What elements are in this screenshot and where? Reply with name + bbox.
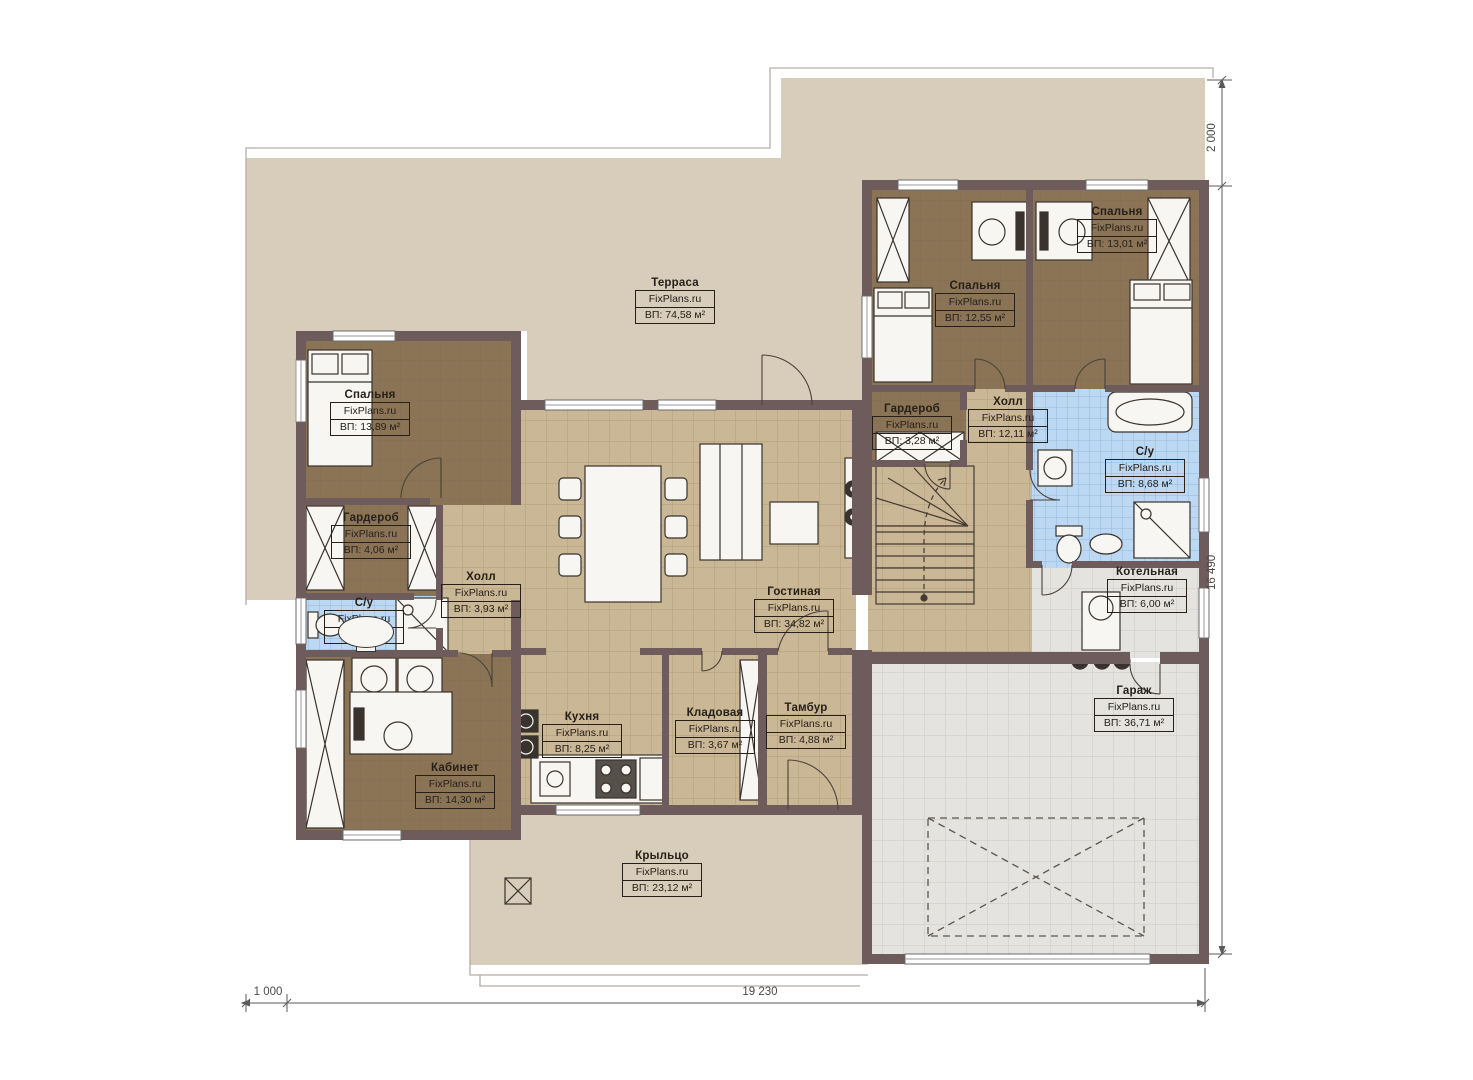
sink-icon <box>338 616 394 648</box>
floor-plan-drawing <box>0 0 1473 1080</box>
room-label-garage: Гараж FixPlans.ruВП: 36,71 м² <box>1094 685 1174 732</box>
room-label-boiler-room: Котельная FixPlans.ruВП: 6,00 м² <box>1107 566 1187 613</box>
room-label-wardrobe-left: Гардероб FixPlans.ruВП: 4,06 м² <box>331 512 411 559</box>
room-label-terrace: Терраса FixPlans.ruВП: 74,58 м² <box>635 277 715 324</box>
room-label-living-room: Гостиная FixPlans.ruВП: 34,82 м² <box>754 586 834 633</box>
floor-plan-page: Терраса FixPlans.ruВП: 74,58 м² Спальня … <box>0 0 1473 1080</box>
room-label-bedroom-middle: Спальня FixPlans.ruВП: 12,55 м² <box>935 280 1015 327</box>
room-label-pantry: Кладовая FixPlans.ruВП: 3,67 м² <box>675 707 755 754</box>
dimension-bottom-main: 19 230 <box>700 986 820 998</box>
room-label-kitchen: Кухня FixPlans.ruВП: 8,25 м² <box>542 711 622 758</box>
room-label-bathroom-right: С/у FixPlans.ruВП: 8,68 м² <box>1105 446 1185 493</box>
room-label-porch: Крыльцо FixPlans.ruВП: 23,12 м² <box>622 850 702 897</box>
dimension-bottom-left: 1 000 <box>246 986 290 998</box>
room-label-study: Кабинет FixPlans.ruВП: 14,30 м² <box>415 762 495 809</box>
room-label-vestibule: Тамбур FixPlans.ruВП: 4,88 м² <box>766 702 846 749</box>
room-label-wardrobe-right: Гардероб FixPlans.ruВП: 3,28 м² <box>872 403 952 450</box>
dimension-top-right: 2 000 <box>1206 123 1218 152</box>
room-label-hall-left: Холл FixPlans.ruВП: 3,93 м² <box>441 571 521 618</box>
dimension-right-side: 16 490 <box>1206 555 1218 590</box>
room-label-bedroom-right: Спальня FixPlans.ruВП: 13,01 м² <box>1077 206 1157 253</box>
room-label-bedroom-left: Спальня FixPlans.ruВП: 13,89 м² <box>330 389 410 436</box>
room-label-hall-right: Холл FixPlans.ruВП: 12,11 м² <box>968 396 1048 443</box>
